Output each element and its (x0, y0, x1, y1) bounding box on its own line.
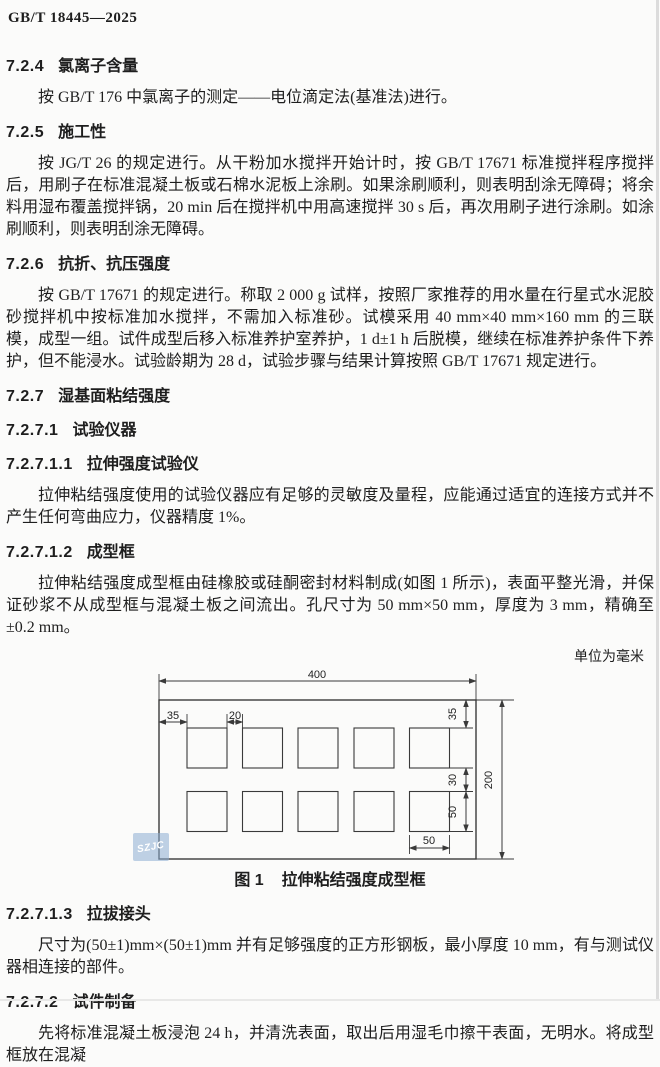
para-specimen-preparation: 先将标准混凝土板浸泡 24 h，并清洗表面，取出后用湿毛巾擦干表面，无明水。将成… (6, 1023, 654, 1067)
heading-7-2-4: 7.2.4氯离子含量 (6, 57, 654, 77)
dim-label-row-gap: 30 (447, 774, 459, 786)
watermark-text: SZJC (136, 839, 165, 855)
heading-title: 抗折、抗压强度 (58, 256, 170, 273)
document-page: { "doc": { "header": "GB/T 18445—2025", … (0, 0, 660, 1001)
heading-number: 7.2.7.1.3 (6, 906, 73, 923)
dim-label-hole-height: 50 (447, 806, 459, 818)
mold-hole (298, 792, 338, 832)
molding-frame-diagram: 400 35 20 (6, 669, 660, 865)
heading-title: 试件制备 (72, 994, 136, 1011)
mold-hole (187, 792, 227, 832)
heading-title: 湿基面粘结强度 (58, 388, 170, 405)
heading-title: 施工性 (58, 124, 106, 141)
dim-label-overall-width: 400 (308, 669, 326, 681)
heading-number: 7.2.7.1.1 (6, 456, 73, 473)
mold-hole (187, 728, 227, 768)
page-root: GB/T 18445—2025 7.2.4氯离子含量 按 GB/T 176 中氯… (0, 0, 660, 1067)
para-flexural-compressive: 按 GB/T 17671 的规定进行。称取 2 000 g 试样，按照厂家推荐的… (6, 285, 654, 373)
heading-title: 氯离子含量 (58, 58, 138, 75)
heading-number: 7.2.7.1.2 (6, 544, 73, 561)
mold-hole (354, 792, 394, 832)
heading-number: 7.2.7 (6, 388, 44, 405)
heading-7-2-7: 7.2.7湿基面粘结强度 (6, 387, 654, 407)
heading-7-2-5: 7.2.5施工性 (6, 123, 654, 143)
para-molding-frame: 拉伸粘结强度成型框由硅橡胶或硅酮密封材料制成(如图 1 所示)，表面平整光滑，并… (6, 573, 654, 639)
mold-hole (410, 792, 450, 832)
mold-hole (243, 792, 283, 832)
heading-number: 7.2.7.1 (6, 422, 58, 439)
heading-7-2-7-1-1: 7.2.7.1.1拉伸强度试验仪 (6, 455, 654, 475)
heading-title: 成型框 (87, 544, 135, 561)
para-tensile-tester: 拉伸粘结强度使用的试验仪器应有足够的灵敏度及量程，应能通过适宜的连接方式并不产生… (6, 485, 654, 529)
watermark-stamp: SZJC (133, 833, 169, 861)
figure-caption-title: 拉伸粘结强度成型框 (282, 872, 426, 889)
heading-title: 试验仪器 (72, 422, 136, 439)
figure-container: 400 35 20 (6, 669, 654, 891)
mold-hole (410, 728, 450, 768)
mold-hole (243, 728, 283, 768)
standard-number-header: GB/T 18445—2025 (8, 8, 654, 28)
heading-title: 拉拔接头 (87, 906, 151, 923)
dim-label-edge-margin-top: 35 (447, 708, 459, 720)
heading-7-2-7-1: 7.2.7.1试验仪器 (6, 421, 654, 441)
para-chloride-method: 按 GB/T 176 中氯离子的测定——电位滴定法(基准法)进行。 (6, 87, 654, 109)
heading-number: 7.2.6 (6, 256, 44, 273)
scan-edge-right (656, 0, 659, 1001)
heading-number: 7.2.5 (6, 124, 44, 141)
figure-caption: 图 1拉伸粘结强度成型框 (6, 871, 654, 891)
heading-title: 拉伸强度试验仪 (87, 456, 199, 473)
heading-7-2-7-1-2: 7.2.7.1.2成型框 (6, 543, 654, 563)
mold-hole (298, 728, 338, 768)
heading-number: 7.2.4 (6, 58, 44, 75)
heading-number: 7.2.7.2 (6, 994, 58, 1011)
dim-label-overall-height: 200 (483, 771, 495, 789)
unit-note: 单位为毫米 (6, 649, 654, 667)
figure-caption-number: 图 1 (234, 872, 263, 889)
dim-label-hole-width: 50 (423, 835, 435, 847)
heading-7-2-7-1-3: 7.2.7.1.3拉拔接头 (6, 905, 654, 925)
heading-7-2-6: 7.2.6抗折、抗压强度 (6, 255, 654, 275)
dim-label-edge-margin-left: 35 (167, 710, 179, 722)
para-workability: 按 JG/T 26 的规定进行。从干粉加水搅拌开始计时，按 GB/T 17671… (6, 153, 654, 241)
dim-label-hole-gap: 20 (229, 710, 241, 722)
mold-hole (354, 728, 394, 768)
heading-7-2-7-2: 7.2.7.2试件制备 (6, 993, 654, 1013)
para-pull-joint: 尺寸为(50±1)mm×(50±1)mm 并有足够强度的正方形钢板，最小厚度 1… (6, 935, 654, 979)
